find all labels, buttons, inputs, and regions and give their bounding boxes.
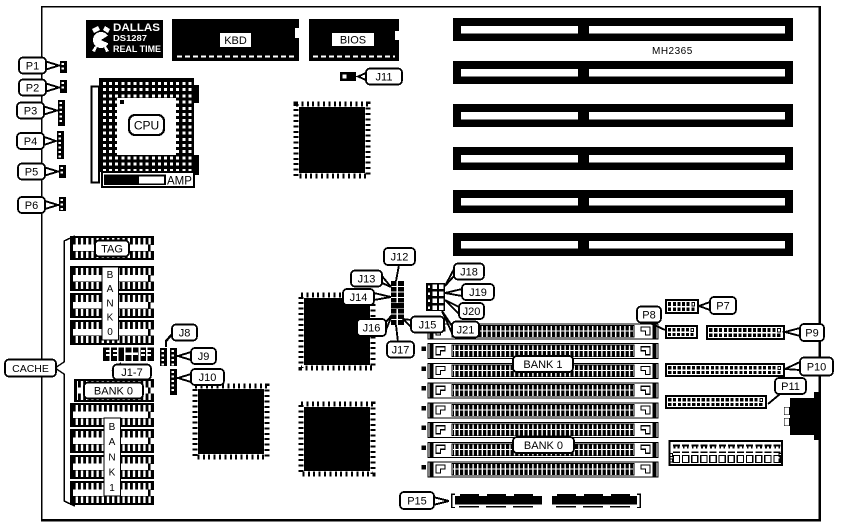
svg-text:J21: J21 xyxy=(457,324,475,336)
svg-text:P5: P5 xyxy=(25,166,38,178)
svg-text:J1-7: J1-7 xyxy=(121,367,142,379)
svg-text:P8: P8 xyxy=(642,309,655,321)
svg-text:CPU: CPU xyxy=(134,118,159,132)
svg-text:P4: P4 xyxy=(24,136,37,148)
svg-text:J14: J14 xyxy=(350,292,368,304)
svg-text:BIOS: BIOS xyxy=(340,35,366,47)
svg-text:J12: J12 xyxy=(391,251,409,263)
svg-text:P10: P10 xyxy=(807,361,827,373)
svg-text:J19: J19 xyxy=(469,287,487,299)
svg-text:1: 1 xyxy=(109,483,115,494)
svg-text:N: N xyxy=(106,298,113,309)
svg-text:J18: J18 xyxy=(460,266,478,278)
svg-text:DS1287: DS1287 xyxy=(113,33,147,43)
svg-text:J15: J15 xyxy=(419,319,437,331)
svg-text:J17: J17 xyxy=(392,344,410,356)
svg-text:KBD: KBD xyxy=(224,35,247,47)
svg-text:P6: P6 xyxy=(25,200,38,212)
svg-text:P1: P1 xyxy=(26,60,39,72)
svg-text:AMP: AMP xyxy=(167,176,192,188)
svg-text:J20: J20 xyxy=(463,306,481,318)
svg-text:N: N xyxy=(108,452,115,463)
svg-text:J8: J8 xyxy=(179,327,191,339)
svg-text:P3: P3 xyxy=(24,105,37,117)
svg-text:P9: P9 xyxy=(805,327,818,339)
svg-text:P2: P2 xyxy=(26,82,39,94)
svg-text:B: B xyxy=(109,422,116,433)
svg-text:J13: J13 xyxy=(358,273,376,285)
svg-text:K: K xyxy=(109,468,116,479)
svg-text:0: 0 xyxy=(107,327,113,338)
svg-text:J10: J10 xyxy=(199,372,217,384)
svg-text:MH2365: MH2365 xyxy=(652,46,693,57)
svg-text:A: A xyxy=(109,437,116,448)
svg-text:J16: J16 xyxy=(363,322,381,334)
svg-text:A: A xyxy=(107,284,114,295)
svg-text:P11: P11 xyxy=(781,381,800,393)
svg-text:BANK 0: BANK 0 xyxy=(524,440,563,452)
svg-text:J11: J11 xyxy=(376,71,393,83)
svg-text:P15: P15 xyxy=(407,495,427,507)
svg-text:TAG: TAG xyxy=(101,243,123,255)
svg-text:BANK 1: BANK 1 xyxy=(523,359,562,371)
svg-text:B: B xyxy=(107,270,114,281)
svg-text:BANK 0: BANK 0 xyxy=(94,385,133,397)
svg-text:CACHE: CACHE xyxy=(12,363,49,375)
svg-text:P7: P7 xyxy=(716,300,729,312)
svg-text:REAL TIME: REAL TIME xyxy=(113,44,161,55)
svg-text:J9: J9 xyxy=(198,351,210,363)
svg-text:K: K xyxy=(107,313,114,324)
